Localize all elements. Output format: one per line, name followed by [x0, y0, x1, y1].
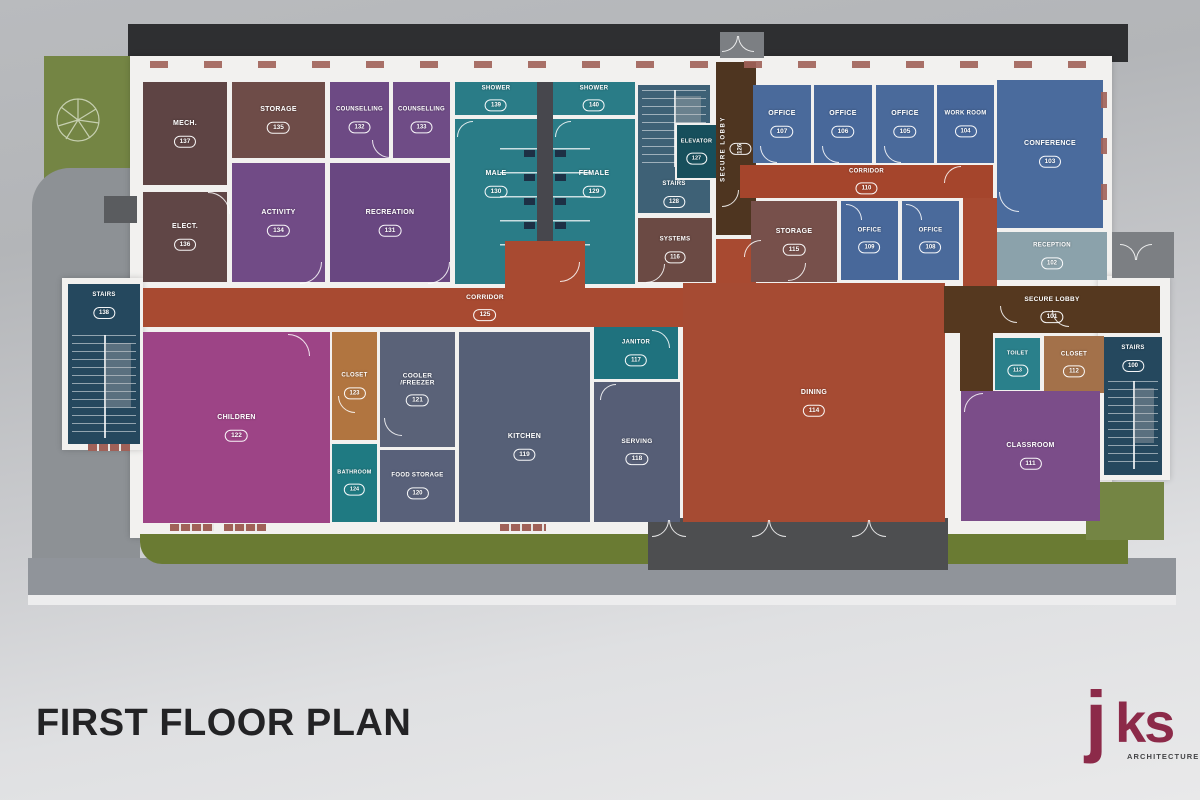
door-swing-arc [722, 190, 739, 207]
door-swing-arc [338, 396, 355, 413]
door-swing-arc [822, 146, 839, 163]
door-swing-arc [384, 418, 402, 436]
door-swing-arc [1000, 306, 1017, 323]
door-swing-arc [457, 121, 473, 137]
door-swing-arc [744, 240, 761, 257]
door-swing-arc [884, 146, 901, 163]
door-swing-arc [846, 204, 862, 220]
door-swing-arc [1120, 244, 1136, 260]
door-swing-arc [906, 204, 922, 220]
door-swing-arc [652, 520, 669, 537]
door-swing-arc [999, 192, 1019, 212]
door-swing-arc [852, 520, 869, 537]
door-swing-arc [760, 146, 777, 163]
door-swing-arc [300, 262, 322, 284]
door-swing-arc [788, 263, 806, 281]
logo-subtitle: ARCHITECTURE [1127, 752, 1199, 761]
door-swing-arc [964, 393, 983, 412]
logo-letters-ks: ks [1115, 690, 1173, 755]
door-swing-arc [669, 520, 686, 537]
door-swing-arc [944, 166, 961, 183]
door-swing-arc [769, 520, 786, 537]
door-swing-arc [372, 140, 390, 158]
logo-letter-j: j [1085, 674, 1107, 766]
door-swing-arc [752, 520, 769, 537]
door-swing-arc [738, 36, 754, 52]
door-swing-arc [555, 121, 571, 137]
door-swing-arc [652, 330, 670, 348]
door-swing-arc [869, 520, 886, 537]
door-swing-arc [646, 264, 665, 283]
door-swing-arc [560, 262, 580, 282]
door-swing-arc [428, 262, 450, 284]
doors-layer [0, 0, 1200, 800]
jks-architecture-logo: j ks ARCHITECTURE [1085, 688, 1197, 796]
door-swing-arc [1136, 244, 1152, 260]
door-swing-arc [208, 192, 230, 214]
door-swing-arc [600, 384, 616, 400]
door-swing-arc [288, 334, 310, 356]
page-title: FIRST FLOOR PLAN [36, 702, 411, 745]
slide: MECH.137ELECT.136STORAGE135ACTIVITY134CO… [0, 0, 1200, 800]
door-swing-arc [722, 36, 738, 52]
door-swing-arc [1052, 310, 1069, 327]
